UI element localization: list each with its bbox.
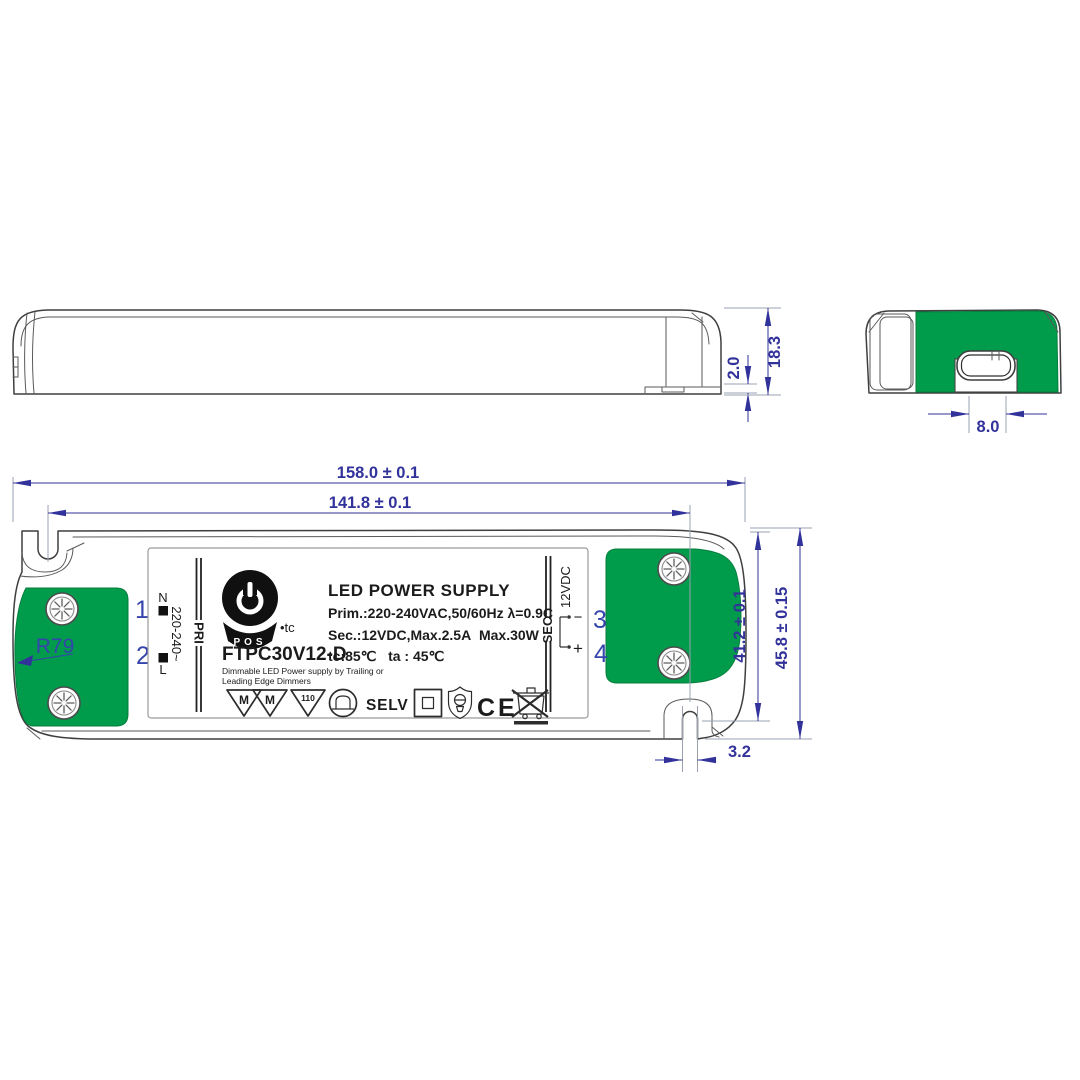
side-view-body [13,310,721,394]
sec-voltage-text: 12VDC [558,566,573,608]
secondary-spec-text: Sec.:12VDC,Max.2.5A Max.30W [328,627,540,643]
dim-slot-width-text: 3.2 [728,743,751,761]
screw-top-left [46,593,78,625]
brand-suffix-text: •tc [280,620,295,635]
model-text: FTPC30V12-D [222,644,347,665]
dim-total-height: 18.3 [724,308,784,395]
triangle-m2-text: M [265,693,275,707]
ce-mark-text: CE [477,694,518,722]
drawing-svg: 2.0 18.3 8.0 [0,0,1080,1080]
dim-length-text: 158.0 ± 0.1 [337,464,419,482]
terminal-4: 4 [594,640,608,668]
screw-top-right [658,553,690,585]
end-view: 8.0 [866,310,1061,436]
terminal-1: 1 [135,596,149,624]
note-line2: Leading Edge Dimmers [222,676,311,686]
primary-spec-text: Prim.:220-240VAC,50/60Hz λ=0.9C [328,605,553,621]
product-label: N L 220-240~ PRI SEC 12VDC − + P [148,548,588,725]
dim-total-height-text: 18.3 [766,336,784,368]
dim-foot-height-text: 2.0 [725,357,743,380]
plus-label: + [573,639,583,658]
selv-mark-text: SELV [366,697,409,714]
dim-connector-width: 8.0 [928,396,1047,436]
radius-label-text: R79 [36,635,75,658]
technical-drawing-page: 2.0 18.3 8.0 [0,0,1080,1080]
dim-foot-height: 2.0 [724,355,757,422]
minus-label: − [574,609,583,626]
neutral-label: N [158,590,167,605]
dim-mounting-pitch-text: 141.8 ± 0.1 [329,494,411,512]
note-line1: Dimmable LED Power supply by Trailing or [222,666,384,676]
triangle-m1-text: M [239,693,249,707]
dim-connector-width-text: 8.0 [977,418,1000,436]
triangle-110-text: 110 [301,693,315,703]
screw-bottom-right [658,647,690,679]
neutral-square [159,606,169,616]
primary-range-text: 220-240~ [169,606,184,662]
terminal-3: 3 [593,606,607,634]
pri-label: PRI [192,622,207,644]
screw-bottom-left [48,687,80,719]
dim-overall-width-text: 45.8 ± 0.15 [773,587,791,669]
plan-view: R79 1 2 3 4 N L 220-240~ PRI SEC 12VDC − [13,464,812,772]
side-view: 2.0 18.3 [13,308,784,422]
dim-body-width-text: 41.2 ± 0.1 [731,589,749,662]
live-label: L [159,662,166,677]
label-title: LED POWER SUPPLY [328,581,510,600]
